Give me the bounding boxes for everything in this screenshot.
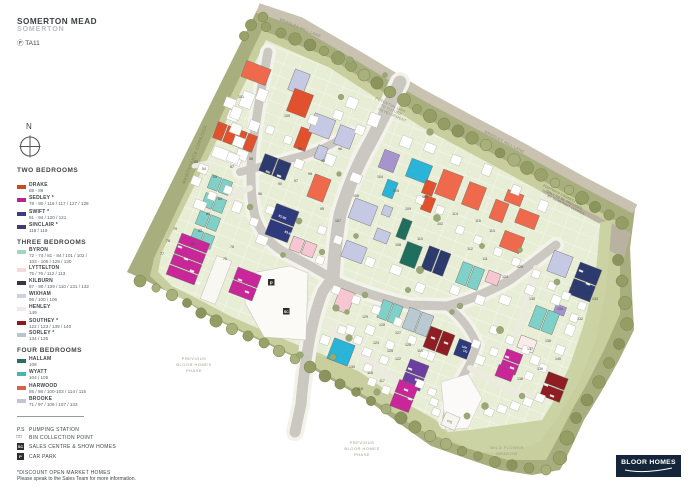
svg-text:SC: SC [284,310,289,314]
svg-text:P: P [270,280,273,285]
svg-text:133: 133 [592,297,598,301]
svg-text:140: 140 [555,357,561,361]
svg-text:105: 105 [393,189,399,193]
svg-text:118: 118 [367,371,373,375]
svg-text:BLOOR HOMES: BLOOR HOMES [344,446,379,451]
svg-text:116: 116 [357,387,363,391]
svg-text:129: 129 [362,315,368,319]
svg-text:PHASE: PHASE [354,452,370,457]
svg-text:111: 111 [482,257,487,261]
svg-text:MEADOW: MEADOW [496,451,517,456]
svg-text:128: 128 [379,323,385,327]
svg-text:81: 81 [191,242,195,246]
svg-text:123: 123 [373,341,379,345]
svg-text:135: 135 [529,297,535,301]
svg-text:89: 89 [266,171,270,175]
svg-text:114: 114 [452,212,458,216]
svg-text:98: 98 [308,172,312,176]
svg-text:56: 56 [258,192,262,196]
svg-text:136: 136 [545,339,551,343]
svg-text:137: 137 [527,347,533,351]
svg-text:104: 104 [377,175,383,179]
svg-text:57: 57 [230,165,234,169]
svg-text:106: 106 [353,194,359,198]
svg-text:119: 119 [417,349,423,353]
svg-text:102: 102 [437,222,443,226]
svg-text:77: 77 [160,252,164,256]
svg-text:99: 99 [298,147,302,151]
svg-text:131: 131 [569,287,575,291]
svg-text:97: 97 [294,179,298,183]
svg-text:95: 95 [321,159,325,163]
svg-text:78: 78 [166,239,170,243]
svg-text:BLOOR HOMES: BLOOR HOMES [176,362,211,367]
svg-text:101: 101 [238,95,244,99]
svg-text:122: 122 [395,357,401,361]
svg-text:112: 112 [467,247,473,251]
svg-text:124: 124 [502,275,508,279]
svg-text:WILD FLOWER: WILD FLOWER [490,445,524,450]
svg-text:58: 58 [249,157,253,161]
svg-text:53: 53 [194,160,198,164]
svg-text:PREVIOUS: PREVIOUS [350,440,375,445]
svg-text:115: 115 [475,219,481,223]
svg-text:83: 83 [206,212,210,216]
svg-text:96: 96 [338,147,342,151]
svg-text:117: 117 [379,379,385,383]
svg-text:76: 76 [230,245,234,249]
svg-text:82: 82 [198,229,202,233]
svg-text:PREVIOUS: PREVIOUS [182,356,207,361]
svg-text:110: 110 [417,237,423,241]
svg-text:54: 54 [202,167,206,171]
svg-text:79: 79 [173,227,177,231]
svg-text:55: 55 [213,175,217,179]
svg-text:95: 95 [320,207,324,211]
svg-text:75: 75 [223,257,227,261]
svg-text:100: 100 [284,114,290,118]
svg-text:138: 138 [517,377,523,381]
svg-text:132: 132 [577,317,583,321]
svg-text:139: 139 [537,367,543,371]
svg-text:134: 134 [557,307,563,311]
svg-text:130: 130 [349,365,355,369]
svg-text:108: 108 [395,243,401,247]
svg-text:90: 90 [278,182,282,186]
svg-text:113: 113 [489,229,495,233]
svg-text:125: 125 [387,349,393,353]
svg-text:PHASE: PHASE [186,368,202,373]
svg-text:109: 109 [405,207,411,211]
svg-text:107: 107 [335,219,341,223]
svg-text:100: 100 [422,195,428,199]
svg-text:125: 125 [517,265,523,269]
svg-text:126: 126 [405,343,411,347]
svg-text:84: 84 [218,197,222,201]
svg-text:127: 127 [395,331,401,335]
